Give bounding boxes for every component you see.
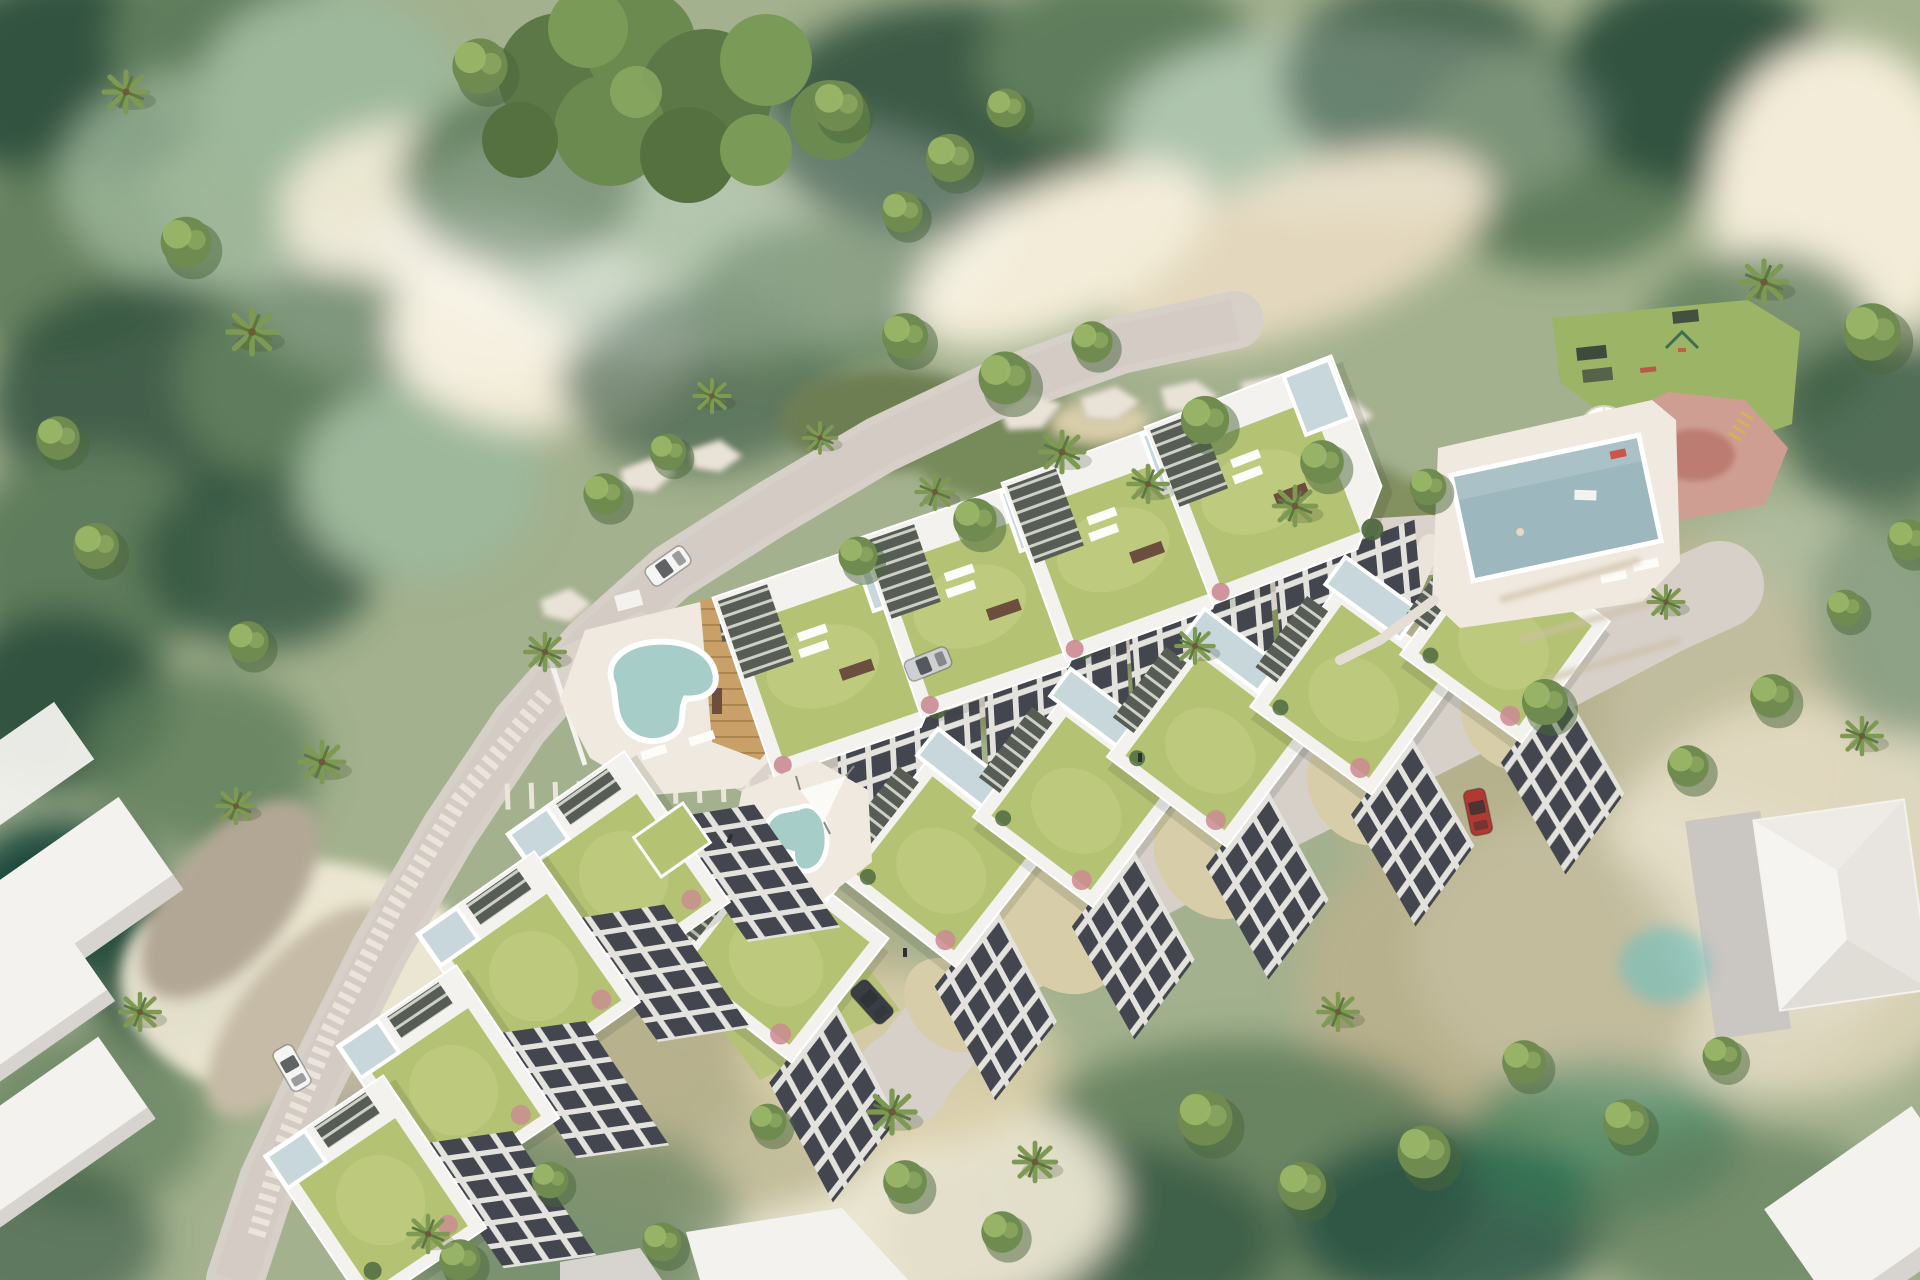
pedestrian (903, 948, 907, 957)
neighbor-hip-roof-house (1752, 798, 1920, 1012)
neighbor-pool-blurred (1620, 927, 1710, 1003)
swing-seat (1678, 348, 1686, 352)
aerial-render-stage (0, 0, 1920, 1280)
aerial-render (0, 0, 1920, 1280)
pedestrian (1138, 753, 1142, 762)
pool-float (1574, 490, 1596, 501)
